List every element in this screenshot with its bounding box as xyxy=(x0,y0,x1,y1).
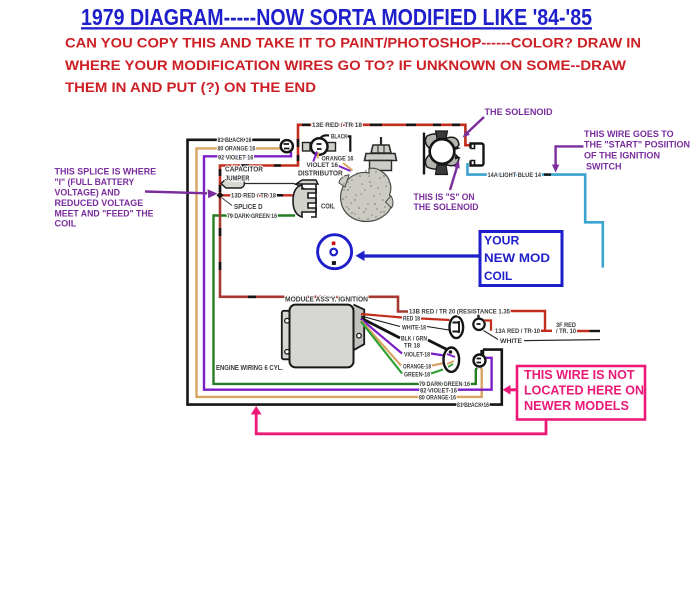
svg-text:13D RED / TR 18: 13D RED / TR 18 xyxy=(231,193,277,200)
svg-text:COIL: COIL xyxy=(484,269,512,283)
svg-text:VOLTAGE) AND: VOLTAGE) AND xyxy=(55,187,121,197)
svg-text:ORANGE-18: ORANGE-18 xyxy=(403,363,431,370)
svg-text:1979 DIAGRAM-----NOW SORTA MOD: 1979 DIAGRAM-----NOW SORTA MODIFIED LIKE… xyxy=(81,4,592,30)
svg-text:ENGINE WIRING 6 CYL.: ENGINE WIRING 6 CYL. xyxy=(216,363,283,372)
svg-text:THIS SPLICE IS WHERE: THIS SPLICE IS WHERE xyxy=(55,166,157,176)
svg-text:79 DARK GREEN 16: 79 DARK GREEN 16 xyxy=(227,213,277,220)
svg-text:WHITE: WHITE xyxy=(500,338,522,345)
svg-text:13B RED / TR 20 (RESISTANCE 1.: 13B RED / TR 20 (RESISTANCE 1.35 xyxy=(409,308,511,315)
svg-text:WHITE-18: WHITE-18 xyxy=(402,324,426,331)
svg-text:JUMPER: JUMPER xyxy=(225,174,250,183)
svg-text:RED 18: RED 18 xyxy=(403,315,420,322)
svg-text:80 ORANGE 16: 80 ORANGE 16 xyxy=(218,146,256,153)
svg-text:TR 18: TR 18 xyxy=(404,342,421,349)
svg-text:"I" (FULL BATTERY: "I" (FULL BATTERY xyxy=(55,177,135,187)
svg-text:REDUCED VOLTAGE: REDUCED VOLTAGE xyxy=(55,198,144,208)
svg-text:COIL: COIL xyxy=(321,202,335,211)
svg-text:DISTRIBUTOR: DISTRIBUTOR xyxy=(298,169,343,178)
svg-text:THIS IS "S" ON: THIS IS "S" ON xyxy=(414,192,475,202)
svg-text:GREEN-18: GREEN-18 xyxy=(404,371,430,378)
svg-text:THIS WIRE GOES TO: THIS WIRE GOES TO xyxy=(584,129,674,139)
svg-text:CAN YOU COPY THIS AND TAKE IT: CAN YOU COPY THIS AND TAKE IT TO PAINT/P… xyxy=(65,35,641,51)
svg-text:80 ORANGE-16: 80 ORANGE-16 xyxy=(419,394,456,401)
svg-text:YOUR: YOUR xyxy=(484,234,520,248)
svg-text:BLK / GRN: BLK / GRN xyxy=(401,335,427,342)
svg-text:CAPACITOR: CAPACITOR xyxy=(225,165,264,174)
svg-text:OF THE IGNITION: OF THE IGNITION xyxy=(584,151,660,161)
svg-text:LOCATED HERE ON: LOCATED HERE ON xyxy=(524,384,644,398)
svg-text:THEM IN AND PUT (?) ON THE END: THEM IN AND PUT (?) ON THE END xyxy=(65,79,316,95)
svg-text:THE SOLENOID: THE SOLENOID xyxy=(485,107,553,117)
svg-text:14A LIGHT BLUE 14: 14A LIGHT BLUE 14 xyxy=(488,172,542,179)
svg-text:13A RED / TR-10: 13A RED / TR-10 xyxy=(495,328,541,335)
svg-text:BLACK: BLACK xyxy=(331,134,348,141)
svg-text:13E RED / TR 18: 13E RED / TR 18 xyxy=(312,122,363,129)
svg-text:COIL: COIL xyxy=(55,219,77,229)
svg-text:THE "START" POSIITION: THE "START" POSIITION xyxy=(584,140,690,150)
svg-text:MEET AND "FEED" THE: MEET AND "FEED" THE xyxy=(55,208,154,218)
svg-text:NEW MOD: NEW MOD xyxy=(484,251,550,265)
svg-text:MODULE ASS'Y. IGNITION: MODULE ASS'Y. IGNITION xyxy=(285,295,368,304)
svg-text:82 VIOLET-16: 82 VIOLET-16 xyxy=(420,387,458,394)
svg-text:SWITCH: SWITCH xyxy=(586,161,622,171)
svg-text:VIOLET-18: VIOLET-18 xyxy=(404,351,430,358)
svg-text:81 BLACK 16: 81 BLACK 16 xyxy=(218,137,252,144)
svg-text:81 BLACK 16: 81 BLACK 16 xyxy=(457,402,489,409)
svg-text:WHERE YOUR MODIFICATION WIRES: WHERE YOUR MODIFICATION WIRES GO TO? IF … xyxy=(65,57,627,73)
svg-text:THIS WIRE IS NOT: THIS WIRE IS NOT xyxy=(524,368,635,382)
svg-text:/ TR. 10: / TR. 10 xyxy=(556,328,576,335)
svg-text:THE SOLENOID: THE SOLENOID xyxy=(414,202,479,212)
svg-text:SPLICE D: SPLICE D xyxy=(234,202,263,211)
svg-text:92 VIOLET 16: 92 VIOLET 16 xyxy=(218,154,254,161)
svg-text:NEWER MODELS: NEWER MODELS xyxy=(524,399,629,413)
